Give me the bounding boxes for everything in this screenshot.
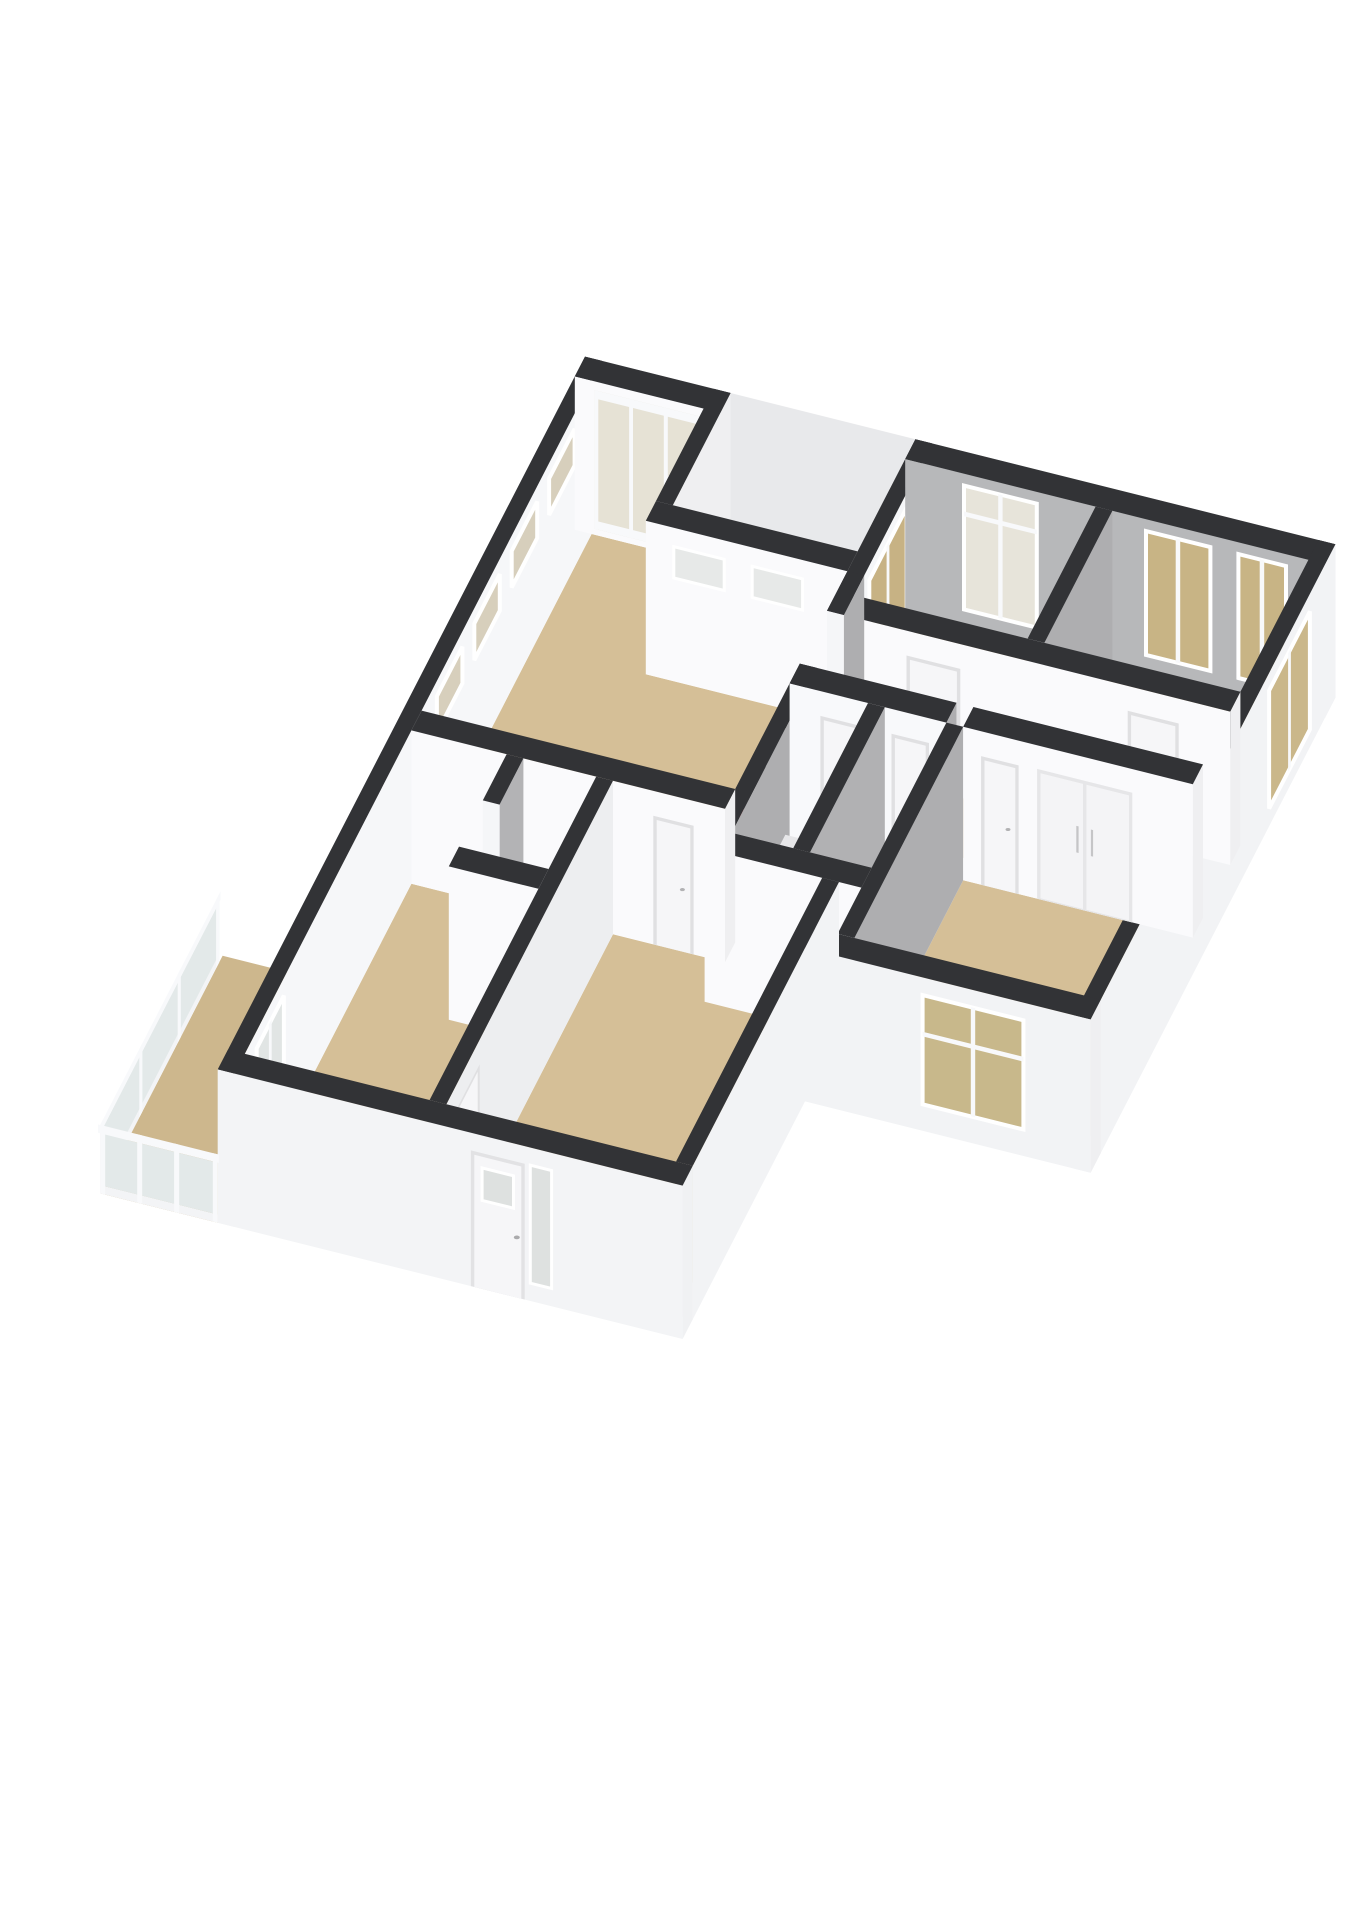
floorplan-image (0, 0, 1358, 1920)
bedroom-2-east-window-mullion (1288, 648, 1291, 771)
floorplan-3d-render (0, 0, 1358, 1920)
door-handle (1006, 828, 1011, 831)
door-handle (680, 888, 685, 891)
se-facade-wall-east-face (1091, 1000, 1101, 1173)
bedroom-3-south-window-mullion (971, 1007, 975, 1117)
hallway-north-wall-east-face (1230, 692, 1240, 865)
balcony-railing-post (137, 1134, 142, 1204)
balcony-railing-post (213, 1153, 218, 1223)
bedroom-3-north-wall-east-face (1193, 764, 1203, 937)
front-door-sidelight (530, 1165, 551, 1288)
living-room-door (657, 820, 691, 954)
glazed-wall-mullion (629, 399, 633, 539)
balcony-railing-post (174, 1143, 179, 1213)
bedroom-2-north-window-mullion (1176, 538, 1181, 663)
wardrobe-handle (1091, 830, 1093, 857)
bedroom-1-north-window-mullion (998, 494, 1002, 619)
bedroom-3-door (985, 760, 1016, 893)
living-room-south-wall-east-face (725, 789, 735, 962)
glazed-wall-mullion (594, 390, 598, 530)
balcony-railing-post (100, 1125, 105, 1195)
front-door-window (482, 1168, 513, 1208)
front-door-handle (514, 1236, 520, 1240)
south-facade-wall-east-face (683, 1166, 693, 1339)
wardrobe-handle (1076, 826, 1078, 853)
